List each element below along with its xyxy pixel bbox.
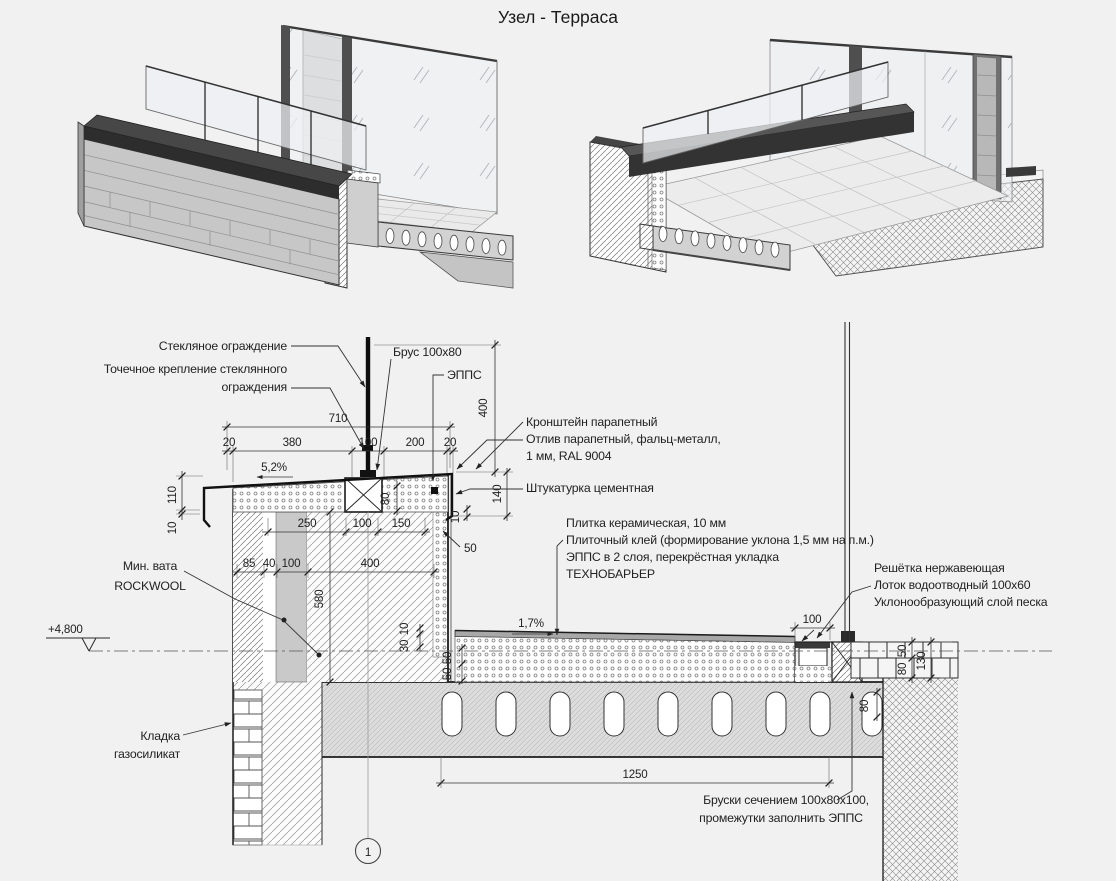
label-epps-2layers: ЭППС в 2 слоя, перекрёстная укладка xyxy=(566,550,779,564)
dim-20a: 20 xyxy=(223,436,236,449)
dim-400b: 400 xyxy=(361,557,380,570)
dim-100a: 100 xyxy=(359,436,378,449)
dim-20b: 20 xyxy=(444,436,457,449)
dim-100c: 100 xyxy=(282,557,301,570)
dim-10b: 10 xyxy=(449,511,462,524)
wall-brick-leaf xyxy=(233,690,262,845)
dim-150: 150 xyxy=(392,517,411,530)
dim-200: 200 xyxy=(406,436,425,449)
dim-50-lead: 50 xyxy=(464,542,477,555)
slab-end-hatch xyxy=(640,224,653,250)
dim-80c: 80 xyxy=(858,700,871,713)
cad-canvas: Узел - Терраса xyxy=(0,0,1116,881)
dim-40: 40 xyxy=(263,557,276,570)
label-sand: Уклонообразующий слой песка xyxy=(874,595,1048,609)
dim-400: 400 xyxy=(477,399,490,418)
dim-1250: 1250 xyxy=(623,768,648,781)
label-point-fix-2: ограждения xyxy=(221,380,287,394)
anchor-dot xyxy=(431,487,438,494)
label-bracket: Кронштейн парапетный xyxy=(526,415,658,429)
block-layer xyxy=(276,512,307,682)
label-flashing-1: Отлив парапетный, фальц-металл, xyxy=(526,432,721,446)
label-tile: Плитка керамическая, 10 мм xyxy=(566,516,726,530)
slope-parapet: 5,2% xyxy=(261,461,287,474)
dim-250: 250 xyxy=(298,517,317,530)
dim-30: 30 xyxy=(398,640,411,653)
label-epps: ЭППС xyxy=(447,368,482,382)
dim-100d: 100 xyxy=(803,613,822,626)
dim-140: 140 xyxy=(491,485,504,504)
dim-85: 85 xyxy=(243,557,256,570)
label-masonry-1: Кладка xyxy=(140,729,180,743)
slope-floor: 1,7% xyxy=(518,617,544,630)
masonry-core xyxy=(307,512,448,682)
sand-under-drain xyxy=(795,666,832,682)
stainless-grate xyxy=(795,642,830,648)
dim-50b: 50 xyxy=(441,668,454,681)
drawing-sheet: Узел - Терраса xyxy=(0,0,1116,881)
dim-100b: 100 xyxy=(353,517,372,530)
dim-10c: 10 xyxy=(398,623,411,636)
label-flashing-2: 1 мм, RAL 9004 xyxy=(526,449,612,463)
dim-10a: 10 xyxy=(166,522,179,535)
glass-mullion-mid xyxy=(342,36,352,190)
glass-shoe xyxy=(841,631,855,642)
label-beam: Брус 100х80 xyxy=(393,345,462,359)
dim-80b: 80 xyxy=(896,663,909,676)
label-minwool-1: Мин. вата xyxy=(123,559,178,573)
wall-column-brick xyxy=(977,57,996,194)
dim-580: 580 xyxy=(313,590,326,609)
axis-marker-number: 1 xyxy=(365,846,371,859)
label-gutter: Лоток водоотводный 100х60 xyxy=(874,578,1031,592)
dim-80a: 80 xyxy=(379,493,392,506)
air-gap xyxy=(263,512,276,682)
view-3d-left xyxy=(78,25,513,288)
dim-110: 110 xyxy=(166,486,179,504)
label-minwool-2: ROCKWOOL xyxy=(114,579,186,593)
label-bars-2: промежутки заполнить ЭППС xyxy=(699,811,863,825)
label-bars-1: Бруски сечением 100х80х100, xyxy=(703,793,869,807)
dim-50a: 50 xyxy=(441,652,454,665)
cut-block xyxy=(347,179,378,247)
hollow-core-slab xyxy=(322,682,883,757)
label-glass-railing: Стекляное ограждение xyxy=(159,339,288,353)
parapet-end-cap xyxy=(78,122,84,226)
label-point-fix-1: Точечное крепление стеклянного xyxy=(104,362,288,376)
label-technobar: ТЕХНОБАРЬЕР xyxy=(566,567,655,581)
wall-right-below xyxy=(883,678,958,881)
label-plaster: Штукатурка цементная xyxy=(526,481,654,495)
dim-50c: 50 xyxy=(896,645,909,658)
post-base-plate xyxy=(360,470,376,477)
label-tile-glue: Плиточный клей (формирование уклона 1,5 … xyxy=(566,533,874,547)
eps-floor-layer xyxy=(455,637,795,683)
label-masonry-2: газосиликат xyxy=(114,747,181,761)
page-title: Узел - Терраса xyxy=(498,7,618,27)
level-value: +4,800 xyxy=(48,623,83,636)
view-3d-right xyxy=(590,40,1043,276)
level-mark: +4,800 xyxy=(46,623,110,651)
dim-380: 380 xyxy=(283,436,302,449)
min-wool-layer xyxy=(233,512,263,682)
label-grate: Решётка нержавеющая xyxy=(874,561,1005,575)
dim-130: 130 xyxy=(915,652,928,671)
slab-voids xyxy=(442,692,882,736)
